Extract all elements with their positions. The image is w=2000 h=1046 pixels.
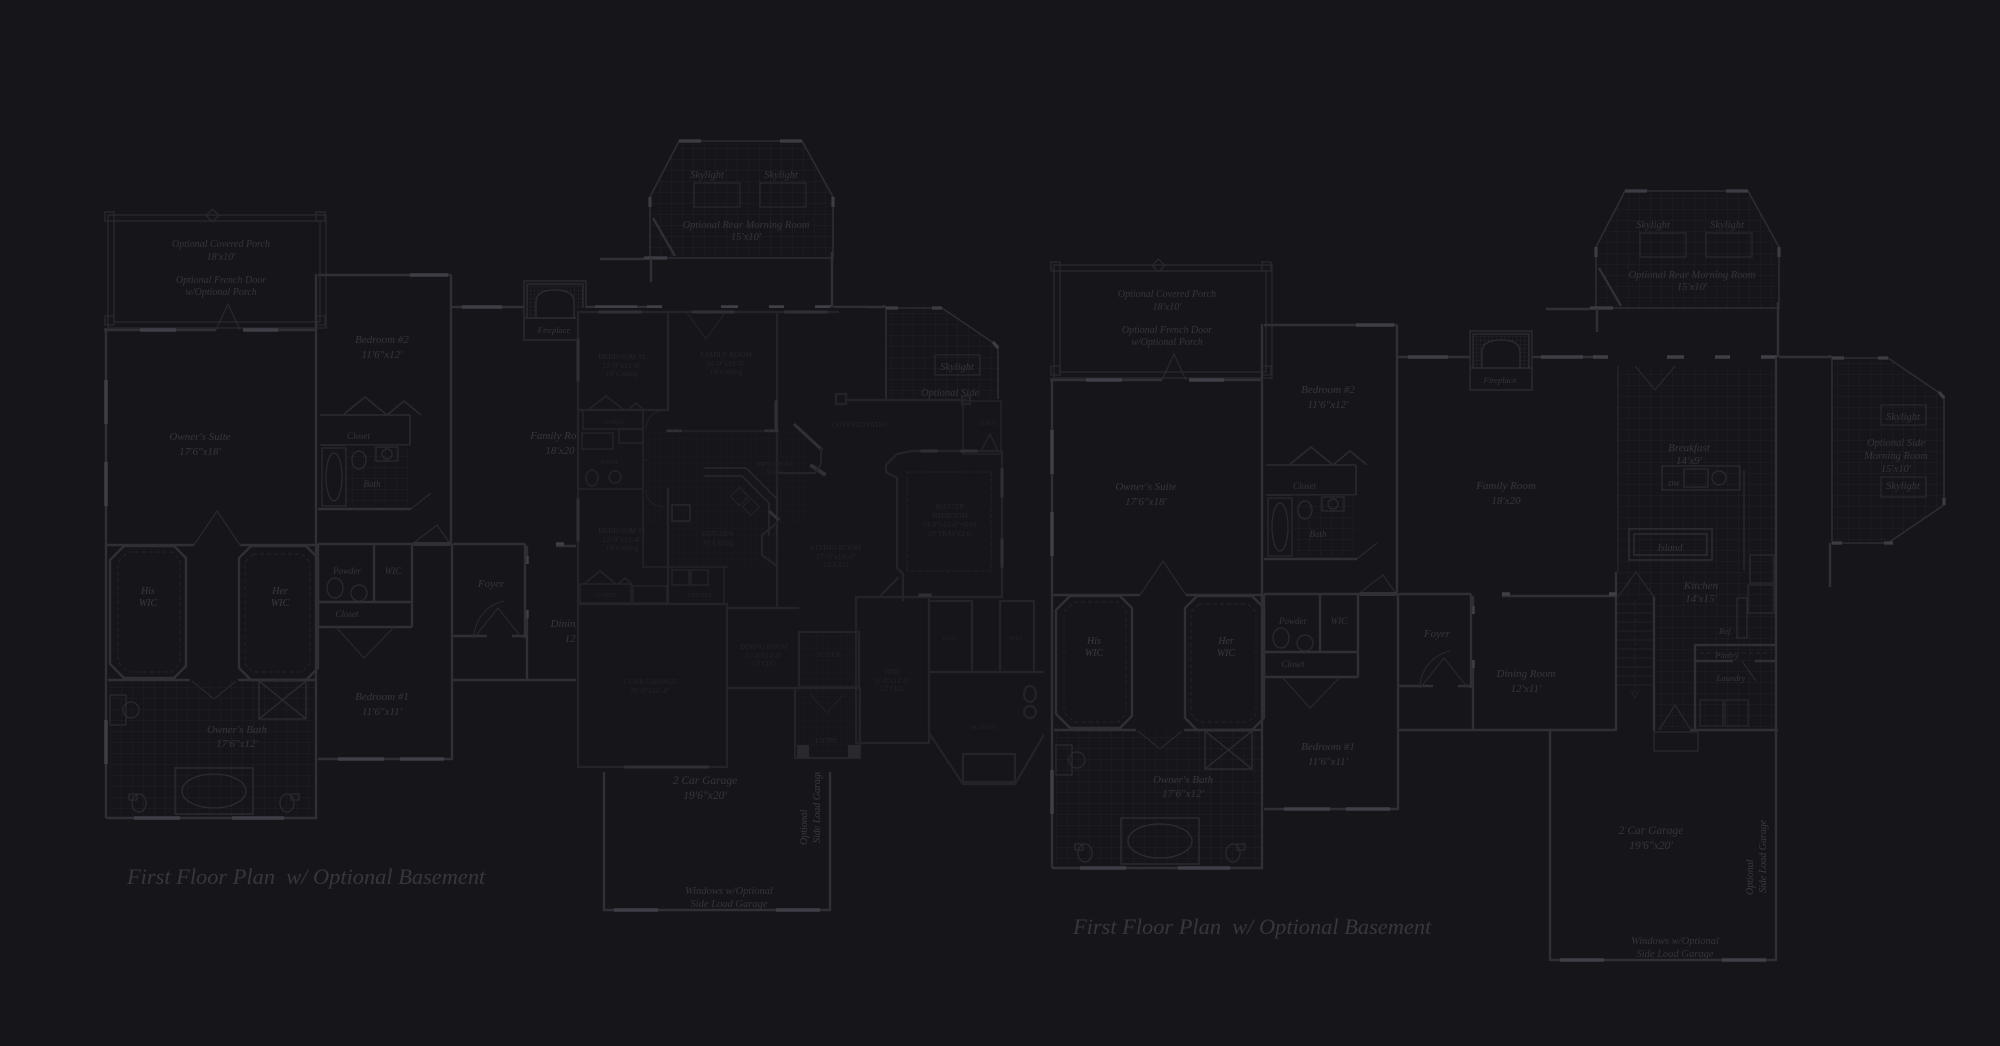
svg-text:13'-0"x16'-0"+BAY: 13'-0"x16'-0"+BAY (922, 521, 977, 529)
svg-text:10' Ceiling: 10' Ceiling (710, 367, 743, 376)
svg-text:BEDROOM: BEDROOM (932, 512, 968, 520)
svg-text:12' CLG: 12' CLG (823, 560, 849, 569)
svg-text:11'-0"x12'-0": 11'-0"x12'-0" (873, 677, 910, 685)
svg-text:UTILITY: UTILITY (687, 592, 713, 599)
svg-text:ENTRY: ENTRY (816, 737, 839, 745)
svg-text:2 CAR GARAGE: 2 CAR GARAGE (623, 677, 678, 686)
svg-text:11'-0"x14'-0": 11'-0"x14'-0" (745, 652, 782, 660)
svg-text:W.I.C.: W.I.C. (1009, 636, 1025, 642)
svg-text:KITCHEN: KITCHEN (703, 530, 734, 538)
svg-text:BATH: BATH (601, 459, 618, 466)
svg-text:DEN: DEN (885, 668, 899, 676)
svg-text:BEDROOM #3: BEDROOM #3 (599, 526, 646, 535)
svg-text:FOYER: FOYER (818, 651, 841, 659)
svg-text:CLOSET: CLOSET (602, 420, 625, 426)
svg-text:10' Ceiling: 10' Ceiling (606, 369, 639, 378)
svg-text:LIVING ROOM: LIVING ROOM (811, 543, 862, 552)
svg-text:12' CLG: 12' CLG (880, 685, 904, 693)
svg-text:W.I.C.: W.I.C. (942, 636, 958, 642)
svg-text:M. BATH: M. BATH (971, 724, 997, 731)
svg-text:FAMILY ROOM: FAMILY ROOM (700, 350, 752, 359)
svg-text:COVERED PATIO: COVERED PATIO (832, 421, 886, 429)
svg-text:BATH: BATH (980, 420, 997, 427)
svg-text:10' Ceiling: 10' Ceiling (606, 543, 639, 552)
svg-text:DINING ROOM: DINING ROOM (740, 643, 788, 651)
svg-text:MASTER: MASTER (936, 503, 965, 511)
svg-text:20'-0"x21'-4": 20'-0"x21'-4" (630, 686, 670, 695)
svg-text:10' Ceiling: 10' Ceiling (703, 539, 734, 547)
svg-text:BEDROOM #2: BEDROOM #2 (599, 352, 646, 361)
svg-text:10' TRAY CLG: 10' TRAY CLG (928, 530, 972, 538)
svg-text:BREAKFAST: BREAKFAST (756, 461, 793, 468)
svg-text:NOOK: NOOK (766, 469, 785, 476)
svg-text:12' CLG: 12' CLG (752, 660, 776, 668)
svg-text:CLOSET: CLOSET (594, 593, 617, 599)
